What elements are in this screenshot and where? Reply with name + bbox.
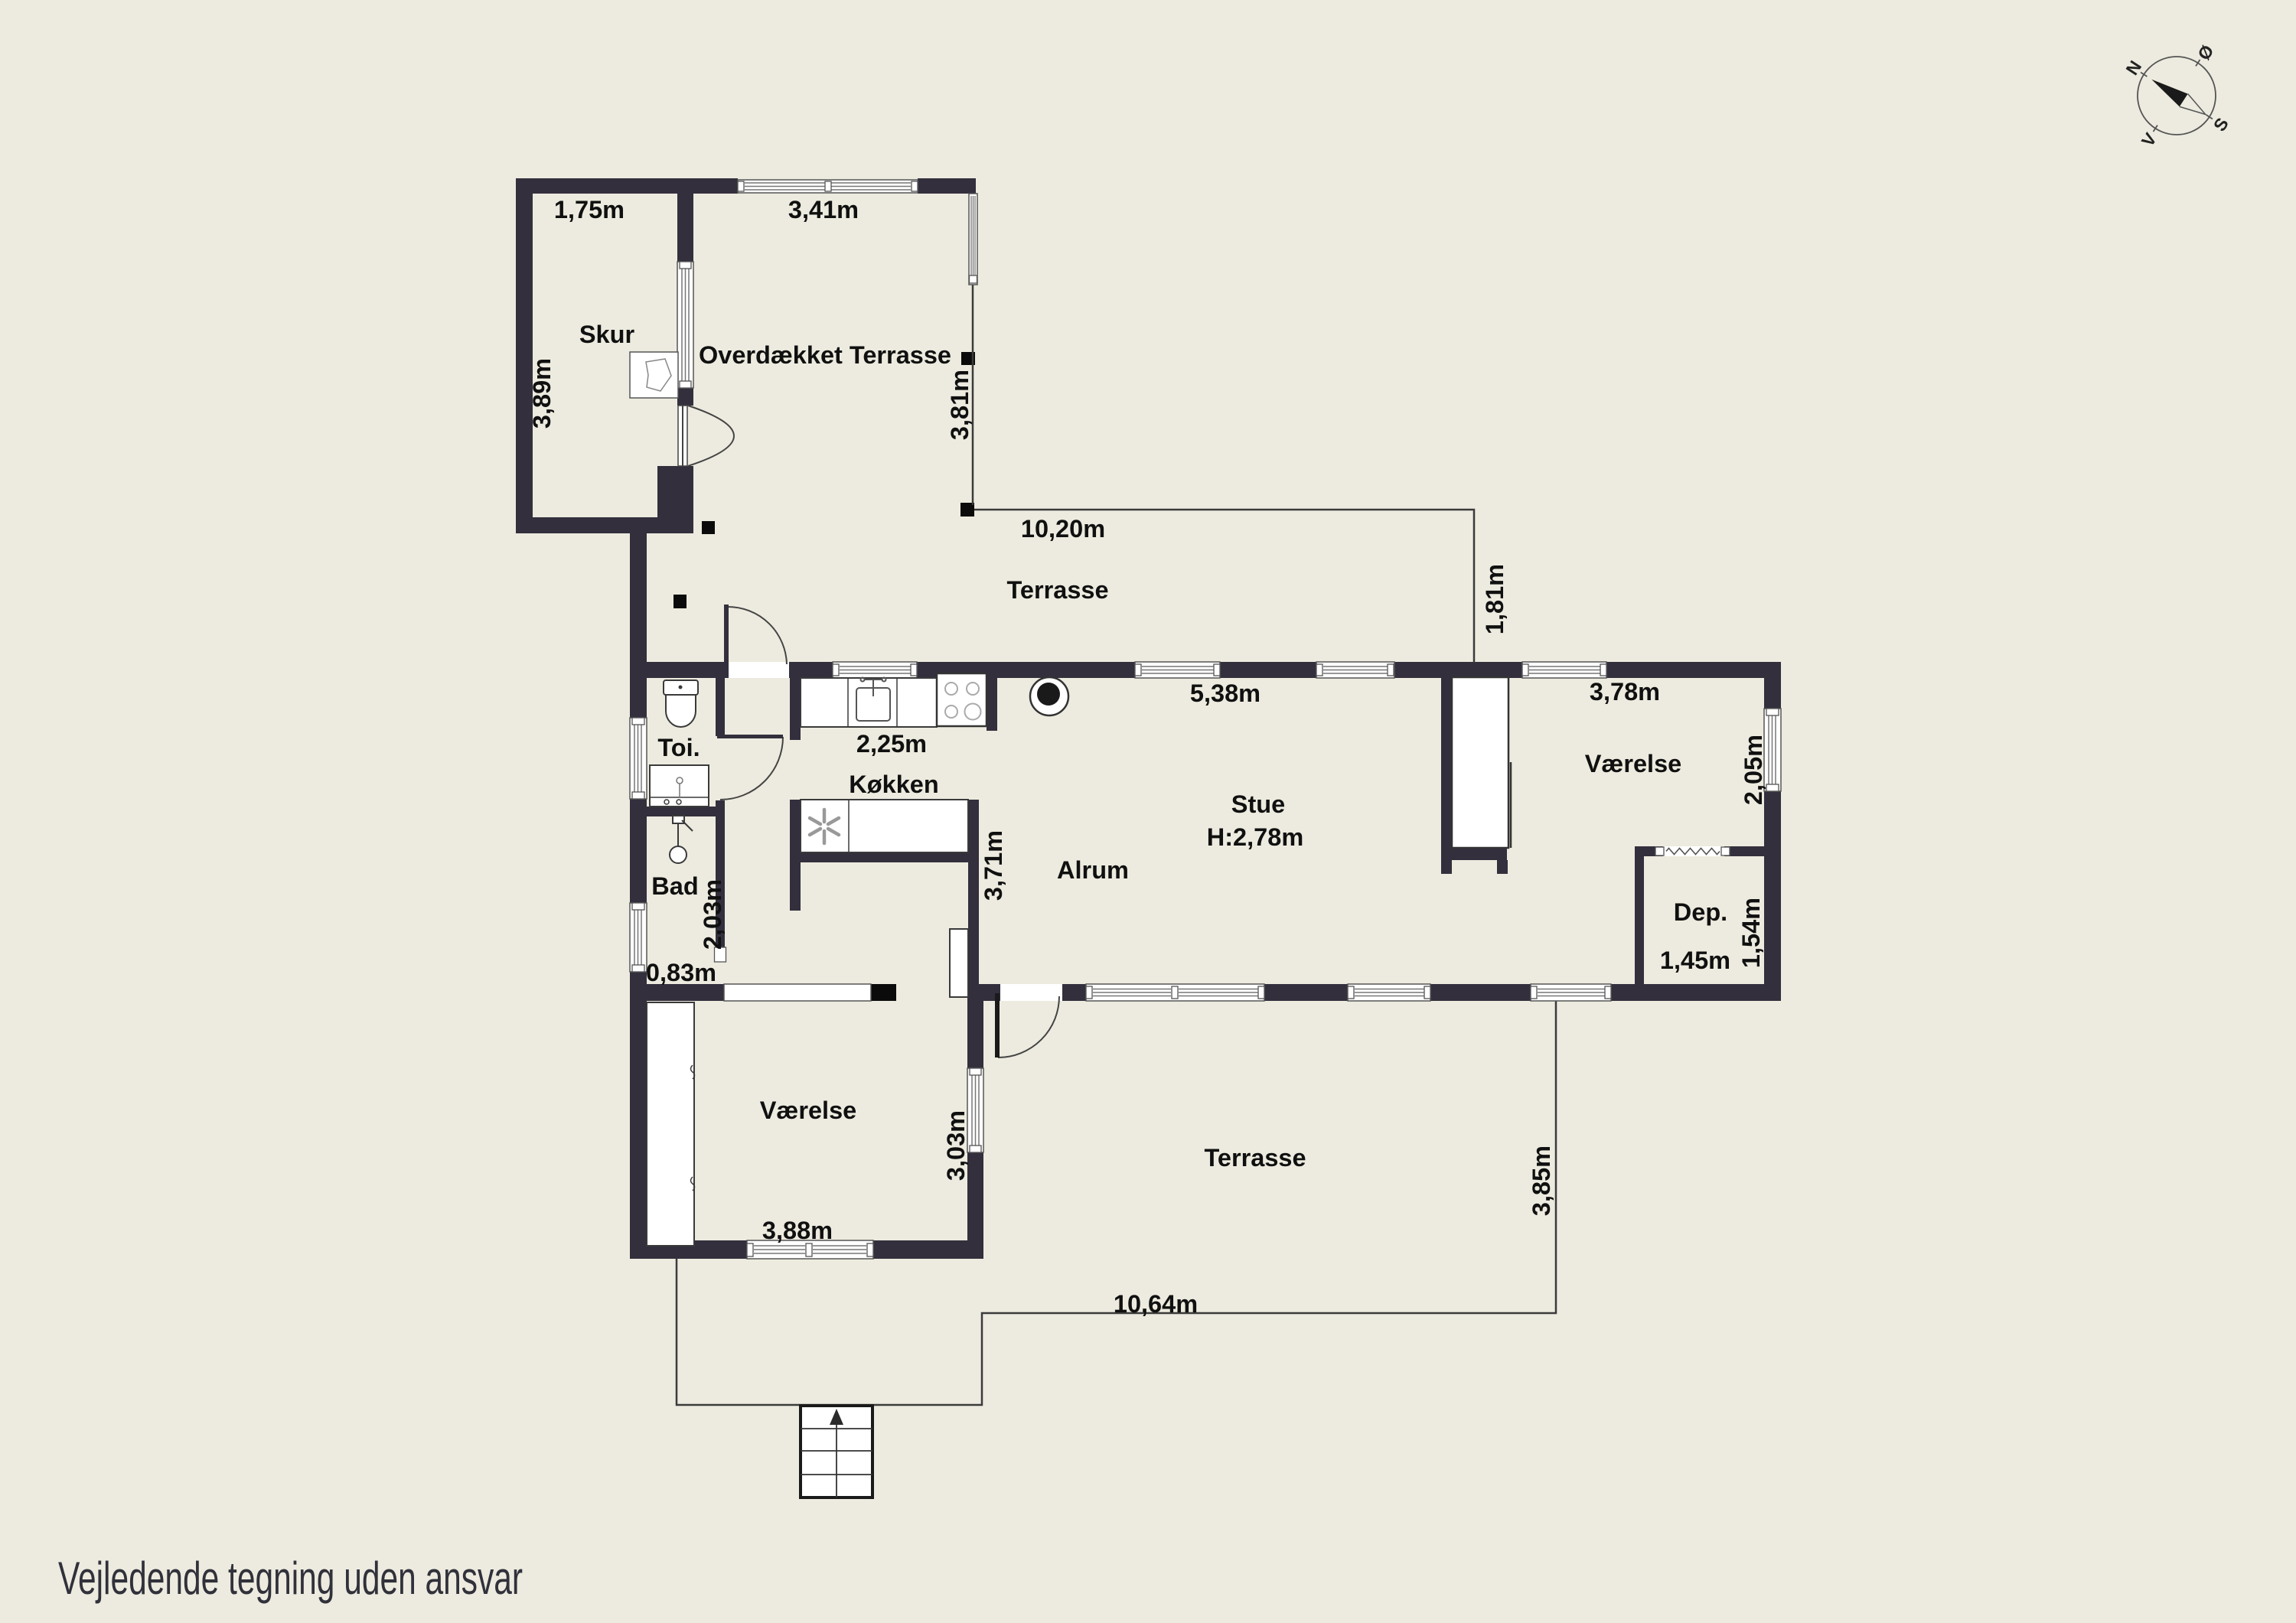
svg-text:Køkken: Køkken — [849, 771, 938, 798]
svg-text:1,54m: 1,54m — [1737, 898, 1765, 968]
svg-text:3,81m: 3,81m — [946, 370, 974, 440]
svg-text:0,83m: 0,83m — [646, 959, 716, 986]
svg-text:Værelse: Værelse — [1585, 750, 1681, 777]
svg-text:3,88m: 3,88m — [762, 1217, 833, 1244]
svg-text:2,25m: 2,25m — [856, 730, 927, 758]
svg-text:Terrasse: Terrasse — [1006, 576, 1108, 604]
svg-text:1,81m: 1,81m — [1481, 564, 1508, 634]
svg-text:Stue: Stue — [1231, 790, 1285, 818]
svg-text:Værelse: Værelse — [760, 1097, 856, 1124]
svg-text:10,20m: 10,20m — [1021, 515, 1105, 543]
svg-text:3,78m: 3,78m — [1590, 678, 1660, 706]
svg-text:1,75m: 1,75m — [554, 196, 625, 223]
svg-text:Bad: Bad — [651, 872, 698, 900]
svg-text:Terrasse: Terrasse — [1204, 1144, 1306, 1172]
svg-text:Toi.: Toi. — [657, 734, 700, 761]
svg-text:2,05m: 2,05m — [1740, 735, 1767, 805]
svg-text:3,41m: 3,41m — [788, 196, 859, 223]
svg-text:10,64m: 10,64m — [1114, 1290, 1198, 1318]
svg-text:Overdækket Terrasse: Overdækket Terrasse — [699, 341, 951, 369]
svg-text:5,38m: 5,38m — [1190, 680, 1261, 707]
svg-text:1,45m: 1,45m — [1660, 947, 1730, 974]
svg-text:3,03m: 3,03m — [942, 1110, 970, 1181]
svg-text:3,89m: 3,89m — [528, 358, 556, 429]
svg-text:Alrum: Alrum — [1057, 856, 1129, 884]
svg-text:3,85m: 3,85m — [1528, 1146, 1555, 1216]
svg-text:H:2,78m: H:2,78m — [1207, 823, 1303, 851]
svg-text:Vejledende tegning uden ansvar: Vejledende tegning uden ansvar — [58, 1553, 523, 1604]
svg-text:Skur: Skur — [579, 321, 635, 348]
svg-text:3,71m: 3,71m — [980, 830, 1007, 901]
svg-text:Dep.: Dep. — [1674, 898, 1727, 926]
svg-text:2,03m: 2,03m — [699, 879, 726, 950]
